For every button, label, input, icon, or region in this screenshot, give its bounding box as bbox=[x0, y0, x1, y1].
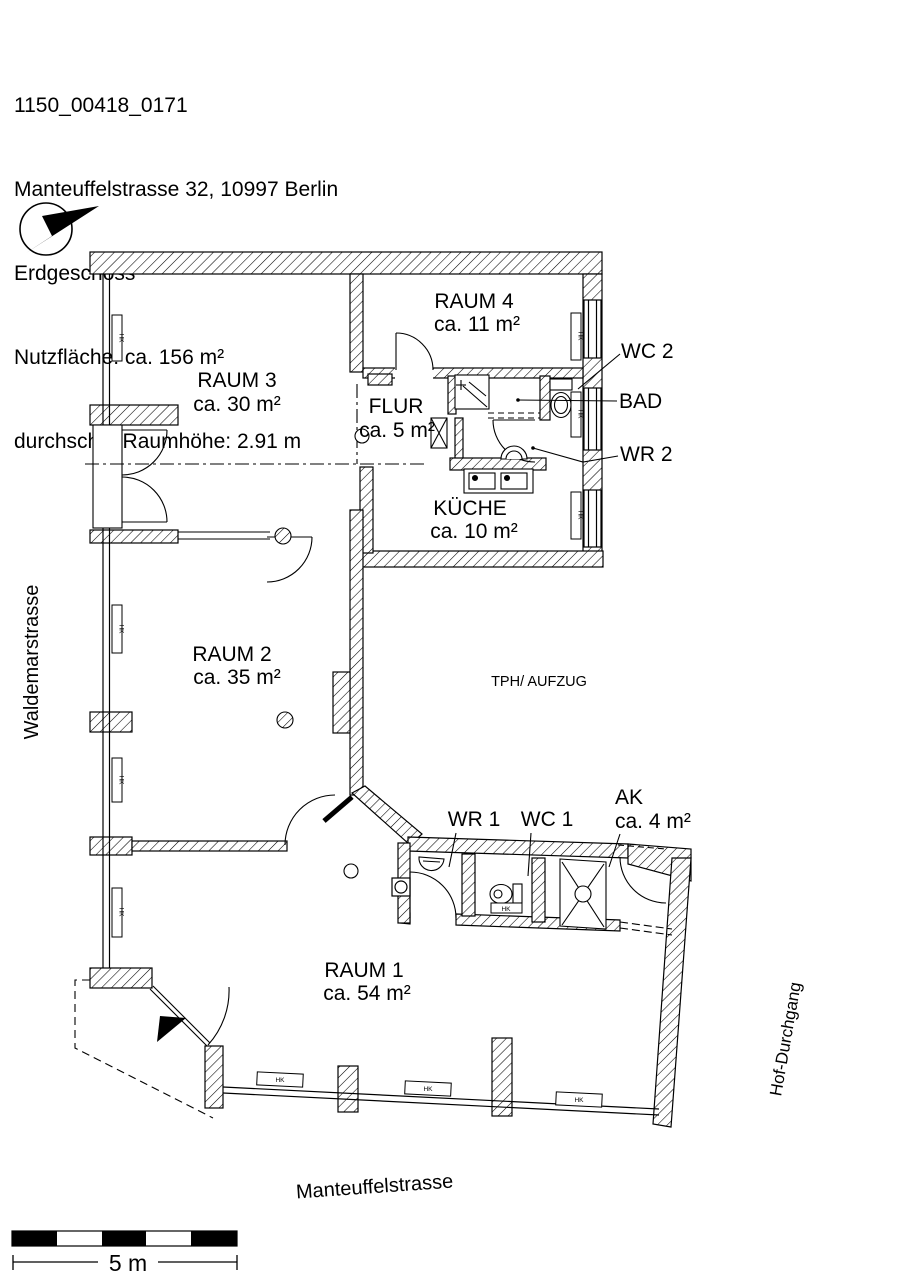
pier-bottom-3 bbox=[492, 1038, 512, 1116]
toilet-wc1-tank bbox=[513, 884, 522, 903]
svg-text:HK: HK bbox=[574, 1097, 584, 1104]
label-raum2: RAUM 2 bbox=[192, 643, 271, 666]
svg-text:HK: HK bbox=[118, 624, 125, 634]
north-arrow-icon bbox=[20, 203, 99, 255]
wall-wr1-wc1 bbox=[462, 854, 475, 916]
window-right-kueche bbox=[584, 490, 601, 547]
door-wr1-arc bbox=[410, 872, 456, 918]
label-wc2: WC 2 bbox=[621, 340, 674, 363]
street-hof-durchgang: Hof-Durchgang bbox=[766, 981, 805, 1098]
svg-text:HK: HK bbox=[118, 907, 125, 917]
street-waldemarstrasse: Waldemarstrasse bbox=[21, 585, 43, 740]
door-niche-left bbox=[93, 425, 122, 528]
pier-left-3 bbox=[90, 837, 132, 855]
wall-right-raum1 bbox=[653, 858, 691, 1127]
wall-wc1-right bbox=[532, 858, 545, 922]
radiator-label: HK bbox=[118, 333, 125, 343]
door-raum1-leaf bbox=[324, 797, 352, 821]
svg-text:HK: HK bbox=[118, 775, 125, 785]
pier-bottom-2 bbox=[338, 1066, 358, 1112]
label-ak: AK bbox=[615, 786, 643, 809]
label-kueche-area: ca. 10 m² bbox=[430, 520, 518, 543]
sink-wr1-icon bbox=[419, 857, 444, 871]
building-outline-dashed bbox=[75, 980, 213, 1118]
svg-text:HK: HK bbox=[577, 510, 584, 520]
door-raum4-arc bbox=[396, 333, 433, 370]
wall-wr2-bottom bbox=[450, 458, 546, 470]
label-wr2: WR 2 bbox=[620, 443, 673, 466]
floor-plan-drawing: HK HK HK HK HK HK HK HK HK HK HK RAUM 3 … bbox=[0, 0, 905, 1282]
label-raum2-area: ca. 35 m² bbox=[193, 666, 281, 689]
wall-wr2-left bbox=[455, 418, 463, 462]
kitchen-sink-basin-1 bbox=[469, 473, 495, 489]
wall-kitchen-bottom bbox=[360, 551, 603, 567]
scale-label: 5 m bbox=[109, 1250, 147, 1276]
label-raum3-area: ca. 30 m² bbox=[193, 393, 281, 416]
door-raum2-arc bbox=[267, 537, 312, 582]
entrance-door-arc bbox=[208, 987, 229, 1045]
label-wc1: WC 1 bbox=[521, 808, 574, 831]
wall-bad-wc2 bbox=[540, 376, 550, 420]
column-raum1 bbox=[344, 864, 358, 878]
wall-top bbox=[90, 252, 602, 274]
label-raum4-area: ca. 11 m² bbox=[434, 313, 520, 336]
svg-text:HK: HK bbox=[577, 409, 584, 419]
porthole-circle bbox=[395, 881, 407, 893]
pier-entrance bbox=[90, 968, 152, 988]
label-raum1: RAUM 1 bbox=[324, 959, 403, 982]
label-bad: BAD bbox=[619, 390, 662, 413]
wall-flur-stub bbox=[368, 374, 392, 385]
entrance-arrow-icon bbox=[157, 1016, 186, 1042]
label-flur: FLUR bbox=[369, 395, 424, 418]
label-raum1-area: ca. 54 m² bbox=[323, 982, 411, 1005]
svg-text:HK: HK bbox=[577, 331, 584, 341]
wall-spine-upper bbox=[350, 274, 363, 372]
street-manteuffelstrasse: Manteuffelstrasse bbox=[295, 1171, 454, 1204]
label-wr1: WR 1 bbox=[448, 808, 501, 831]
duct-circle bbox=[575, 886, 591, 902]
label-flur-area: ca. 5 m² bbox=[359, 419, 435, 442]
room-labels: RAUM 3 ca. 30 m² RAUM 4 ca. 11 m² FLUR c… bbox=[192, 290, 691, 1005]
svg-text:HK: HK bbox=[423, 1086, 433, 1093]
pier-bottom-1 bbox=[205, 1046, 223, 1108]
double-door-left-arc-2 bbox=[122, 477, 167, 522]
wall-chimney bbox=[333, 672, 350, 733]
kitchen-sink-basin-2 bbox=[501, 473, 527, 489]
wall-spine-lower bbox=[350, 510, 363, 795]
window-right-bad bbox=[584, 388, 601, 450]
label-raum4: RAUM 4 bbox=[434, 290, 514, 313]
scale-bar: 5 m bbox=[12, 1231, 237, 1276]
svg-text:HK: HK bbox=[275, 1077, 285, 1084]
wall-band-top bbox=[408, 837, 628, 858]
double-door-left-arc-1 bbox=[122, 430, 167, 475]
column-raum2-wall bbox=[275, 528, 291, 544]
column-raum2 bbox=[277, 712, 293, 728]
wall-raum2-raum1 bbox=[132, 841, 287, 851]
svg-text:HK: HK bbox=[501, 906, 511, 913]
toilet-wc2-tank bbox=[550, 379, 572, 390]
floorplan-page: { "header": { "doc_id": "1150_00418_0171… bbox=[0, 0, 905, 1282]
label-kueche: KÜCHE bbox=[433, 497, 507, 520]
window-right-raum4 bbox=[584, 300, 601, 358]
label-raum3: RAUM 3 bbox=[197, 369, 276, 392]
label-stairwell: TPH/ AUFZUG bbox=[491, 674, 587, 690]
label-ak-area: ca. 4 m² bbox=[615, 810, 691, 833]
wall-diagonal bbox=[352, 786, 422, 845]
pier-left-2 bbox=[90, 712, 132, 732]
